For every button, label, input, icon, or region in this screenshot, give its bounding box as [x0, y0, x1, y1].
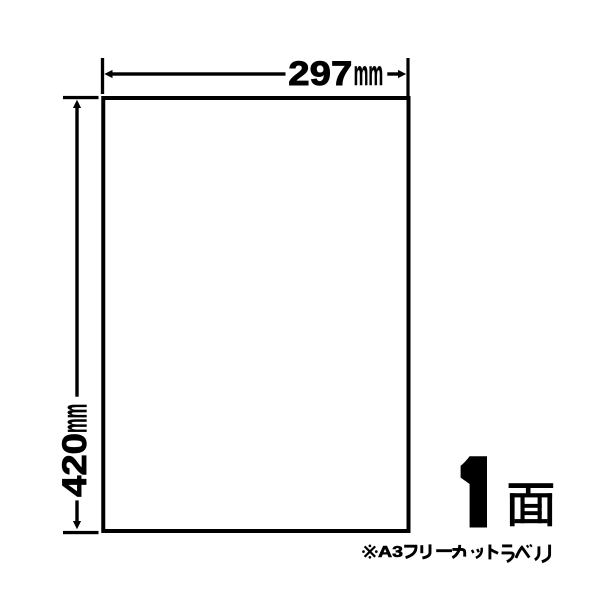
- svg-text:A3: A3: [378, 544, 403, 561]
- svg-text:mm: mm: [55, 404, 94, 433]
- svg-text:297: 297: [288, 55, 352, 93]
- svg-text:mm: mm: [354, 54, 384, 93]
- svg-text:420: 420: [56, 433, 94, 497]
